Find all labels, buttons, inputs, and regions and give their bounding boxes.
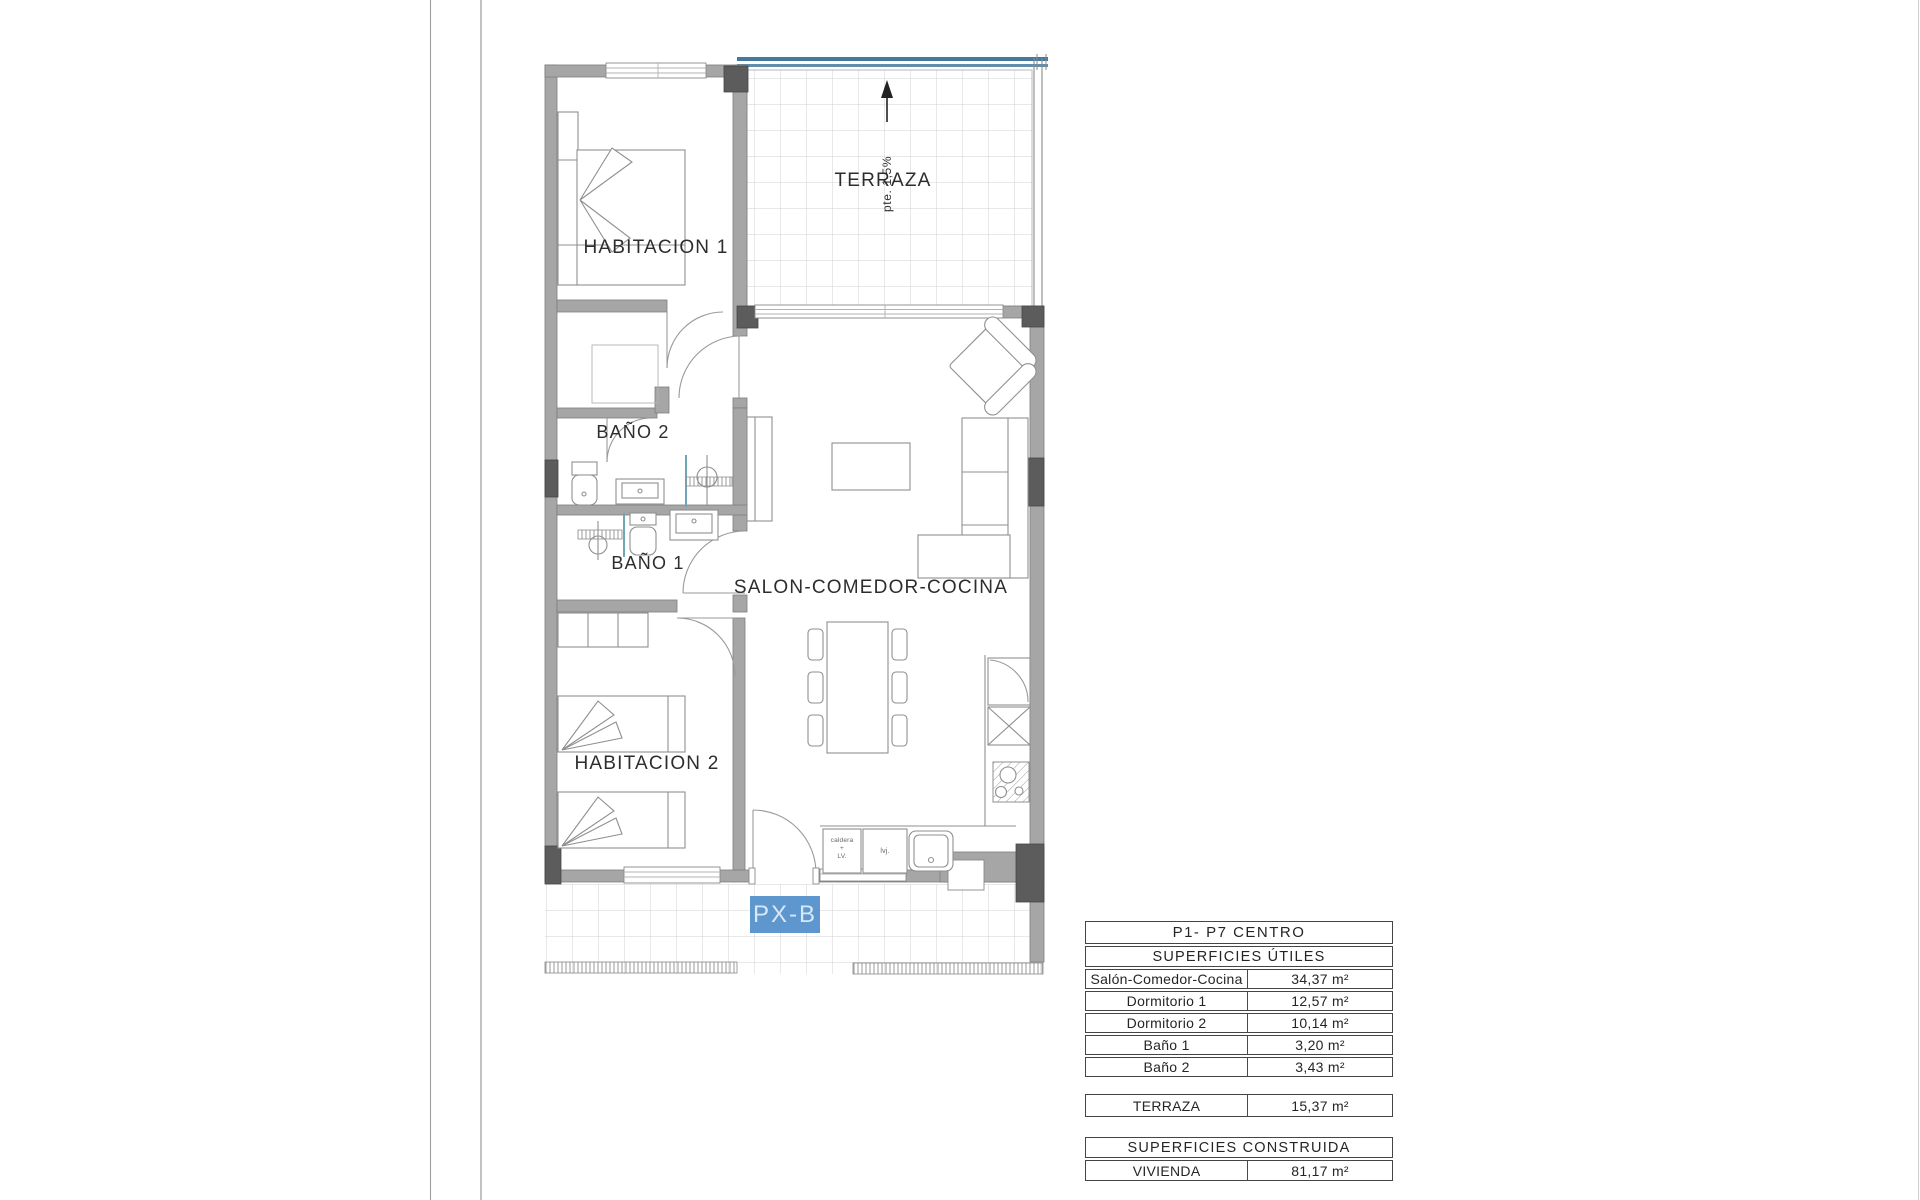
coffee-table xyxy=(832,443,910,490)
table-row: Salón-Comedor-Cocina 34,37 m² xyxy=(1085,969,1393,989)
unit-tag: PX-B xyxy=(750,896,820,933)
table-title: SUPERFICIES CONSTRUIDA xyxy=(1085,1137,1393,1158)
table-title-text: P1- P7 CENTRO xyxy=(1173,924,1306,941)
svg-text:LV.: LV. xyxy=(837,853,846,860)
toilet-icon xyxy=(630,513,656,525)
row-label: Dormitorio 2 xyxy=(1086,1014,1248,1032)
row-value: 12,57 m² xyxy=(1248,992,1392,1010)
floorplan-sheet: caldera + LV. lvj. pte. 1,5% HABITACION … xyxy=(0,0,1920,1200)
room-label-salon: SALON-COMEDOR-COCINA xyxy=(734,577,1008,598)
room-label-habitacion2: HABITACION 2 xyxy=(575,753,720,774)
row-value: 3,43 m² xyxy=(1248,1058,1392,1076)
chair xyxy=(892,715,907,746)
table-title: P1- P7 CENTRO xyxy=(1085,921,1393,944)
chair xyxy=(892,672,907,703)
row-label: TERRAZA xyxy=(1086,1095,1248,1116)
dining-set xyxy=(808,622,907,753)
armchair xyxy=(940,314,1045,419)
dining-table xyxy=(827,622,888,753)
superficies-utiles-table: P1- P7 CENTRO SUPERFICIES ÚTILES Salón-C… xyxy=(1085,921,1393,1077)
area-tables: P1- P7 CENTRO SUPERFICIES ÚTILES Salón-C… xyxy=(1085,919,1393,1181)
room-label-habitacion1: HABITACION 1 xyxy=(584,237,729,258)
svg-text:+: + xyxy=(840,845,844,852)
table-subtitle-text: SUPERFICIES ÚTILES xyxy=(1152,949,1325,965)
table-row: Dormitorio 2 10,14 m² xyxy=(1085,1013,1393,1033)
chaise xyxy=(918,535,1010,578)
toilet-icon xyxy=(572,462,597,475)
row-label: Baño 1 xyxy=(1086,1036,1248,1054)
tv-bench xyxy=(747,417,772,521)
table-row: Baño 1 3,20 m² xyxy=(1085,1035,1393,1055)
chair xyxy=(808,629,823,660)
chair xyxy=(808,715,823,746)
bedroom1-furniture xyxy=(558,112,685,285)
row-value: 81,17 m² xyxy=(1248,1161,1392,1180)
cabinet xyxy=(988,658,1030,705)
room-label-bano2: BAÑO 2 xyxy=(596,421,669,442)
unit-tag-label: PX-B xyxy=(753,901,817,928)
boiler-label: caldera xyxy=(831,837,854,844)
terraza-table: TERRAZA 15,37 m² xyxy=(1085,1094,1393,1117)
table-subtitle: SUPERFICIES ÚTILES xyxy=(1085,946,1393,967)
room-label-bano1: BAÑO 1 xyxy=(611,552,684,573)
floorplan-drawing: caldera + LV. lvj. pte. 1,5% HABITACION … xyxy=(0,0,1920,1200)
row-value: 3,20 m² xyxy=(1248,1036,1392,1054)
room-label-terraza: TERRAZA xyxy=(834,170,931,191)
row-value: 34,37 m² xyxy=(1248,970,1392,988)
row-value: 10,14 m² xyxy=(1248,1014,1392,1032)
bathroom2-fixtures xyxy=(572,455,732,507)
table-row: Dormitorio 1 12,57 m² xyxy=(1085,991,1393,1011)
chair xyxy=(892,629,907,660)
chair xyxy=(808,672,823,703)
row-value: 15,37 m² xyxy=(1248,1095,1392,1116)
superficies-construida-table: SUPERFICIES CONSTRUIDA VIVIENDA 81,17 m² xyxy=(1085,1137,1393,1181)
living-room-furniture xyxy=(747,314,1045,578)
table-row: TERRAZA 15,37 m² xyxy=(1085,1094,1393,1117)
bedroom2-furniture xyxy=(558,613,685,848)
shower-icon xyxy=(686,477,732,486)
row-label: VIVIENDA xyxy=(1086,1161,1248,1180)
dishwasher-label: lvj. xyxy=(880,848,889,855)
row-label: Salón-Comedor-Cocina xyxy=(1086,970,1248,988)
table-row: Baño 2 3,43 m² xyxy=(1085,1057,1393,1077)
row-label: Dormitorio 1 xyxy=(1086,992,1248,1010)
table-row: VIVIENDA 81,17 m² xyxy=(1085,1160,1393,1181)
table-title-text: SUPERFICIES CONSTRUIDA xyxy=(1128,1140,1351,1156)
hall-closet xyxy=(592,345,658,403)
shower-icon xyxy=(578,530,622,539)
row-label: Baño 2 xyxy=(1086,1058,1248,1076)
